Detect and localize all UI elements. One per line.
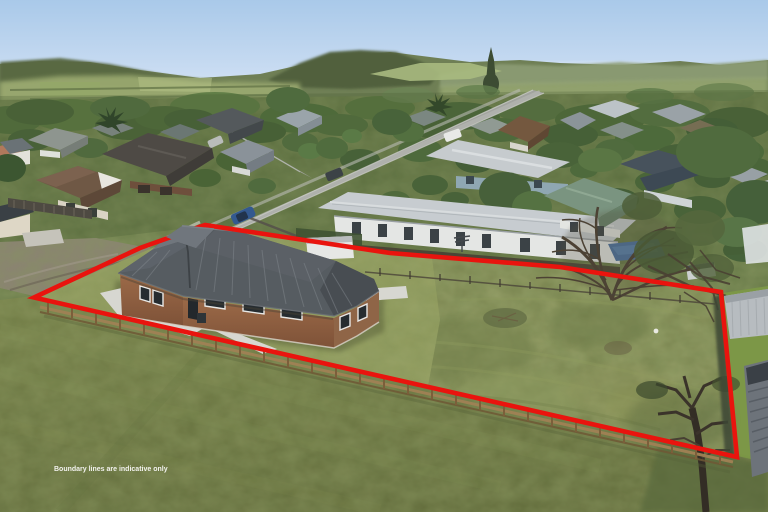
svg-text:Boundary lines are indicative: Boundary lines are indicative only [54,466,168,473]
